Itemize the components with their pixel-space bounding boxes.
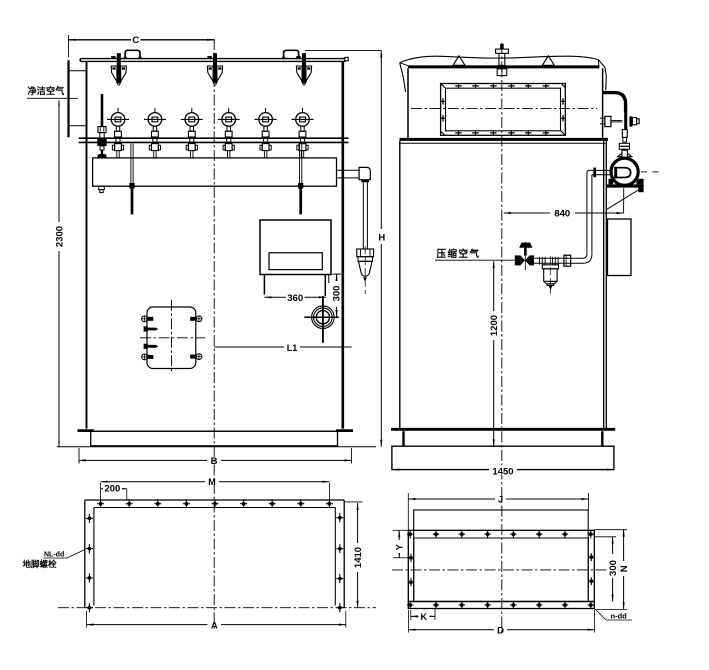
svg-text:M: M — [208, 477, 216, 487]
svg-text:Y: Y — [395, 544, 405, 550]
svg-text:B: B — [211, 456, 218, 467]
svg-text:D: D — [497, 625, 504, 636]
svg-text:2300: 2300 — [55, 226, 66, 247]
svg-text:C: C — [132, 35, 139, 46]
svg-text:1200: 1200 — [489, 315, 500, 336]
svg-text:300: 300 — [332, 286, 343, 302]
svg-text:n-dd: n-dd — [611, 612, 628, 621]
svg-text:N: N — [619, 565, 630, 572]
svg-text:1410: 1410 — [353, 547, 364, 568]
svg-text:K: K — [421, 612, 428, 622]
svg-text:J: J — [498, 495, 503, 506]
svg-text:地脚螺栓: 地脚螺栓 — [23, 559, 58, 569]
svg-text:L1: L1 — [287, 343, 298, 353]
svg-text:840: 840 — [554, 209, 570, 220]
svg-text:H: H — [378, 232, 385, 243]
svg-text:净洁空气: 净洁空气 — [28, 85, 65, 96]
svg-text:压缩空气: 压缩空气 — [437, 248, 481, 260]
svg-text:1450: 1450 — [492, 466, 513, 477]
svg-text:A: A — [211, 620, 218, 631]
svg-text:NL-dd: NL-dd — [44, 552, 64, 559]
svg-text:360: 360 — [287, 293, 303, 304]
svg-text:200: 200 — [104, 484, 120, 495]
svg-text:300: 300 — [608, 560, 619, 576]
